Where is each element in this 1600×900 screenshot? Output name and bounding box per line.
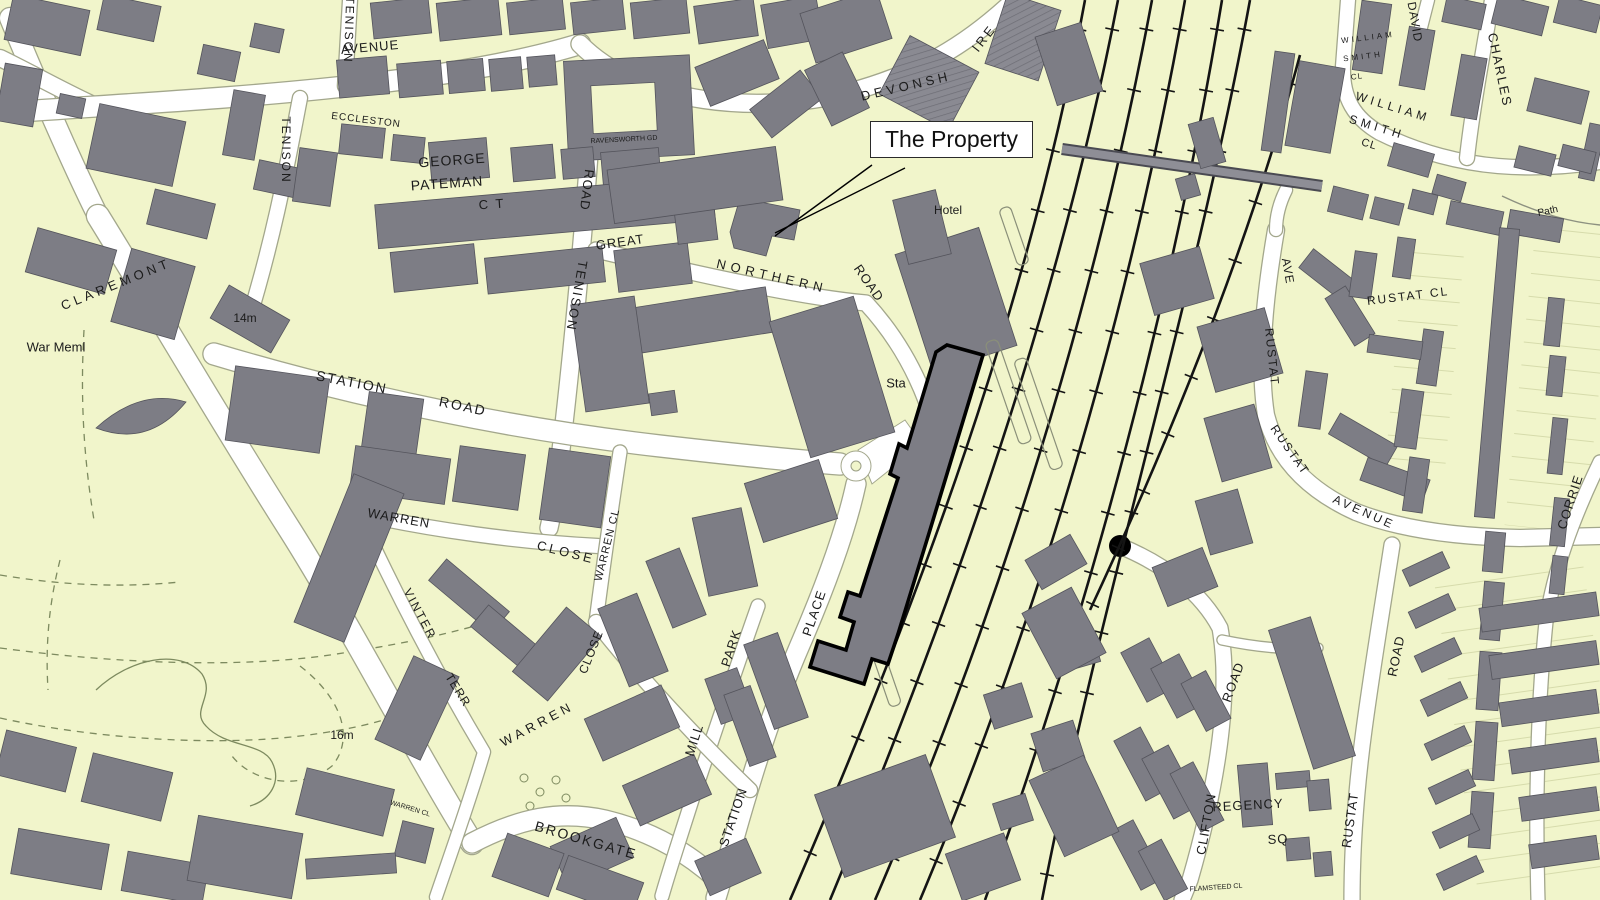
street-map: TENISONAVENUETENISONECCLESTONGEORGEPATEM… (0, 0, 1600, 900)
building (361, 392, 424, 457)
building (391, 134, 426, 163)
building (447, 58, 486, 93)
building (397, 60, 444, 98)
building (539, 448, 610, 528)
building (1237, 763, 1272, 827)
building (570, 0, 625, 35)
building (292, 148, 337, 207)
building (527, 55, 558, 87)
building (428, 138, 489, 183)
building (630, 0, 689, 39)
building (336, 56, 389, 98)
building (614, 242, 693, 293)
building (1313, 851, 1333, 876)
building (436, 0, 502, 41)
building (1275, 771, 1310, 790)
building (339, 124, 386, 158)
building (489, 57, 524, 92)
property-callout: The Property (870, 121, 1033, 158)
building (370, 0, 431, 39)
building (506, 0, 565, 35)
building (1285, 837, 1311, 861)
roundabout (841, 451, 871, 481)
building (1472, 721, 1498, 780)
building (694, 0, 759, 44)
building (1307, 779, 1332, 811)
building (1482, 531, 1505, 573)
building (511, 144, 556, 182)
building (561, 147, 595, 180)
building (390, 244, 478, 293)
building (225, 366, 330, 453)
building (452, 446, 525, 511)
map-canvas (0, 0, 1600, 900)
building (649, 390, 678, 415)
building (591, 82, 657, 133)
